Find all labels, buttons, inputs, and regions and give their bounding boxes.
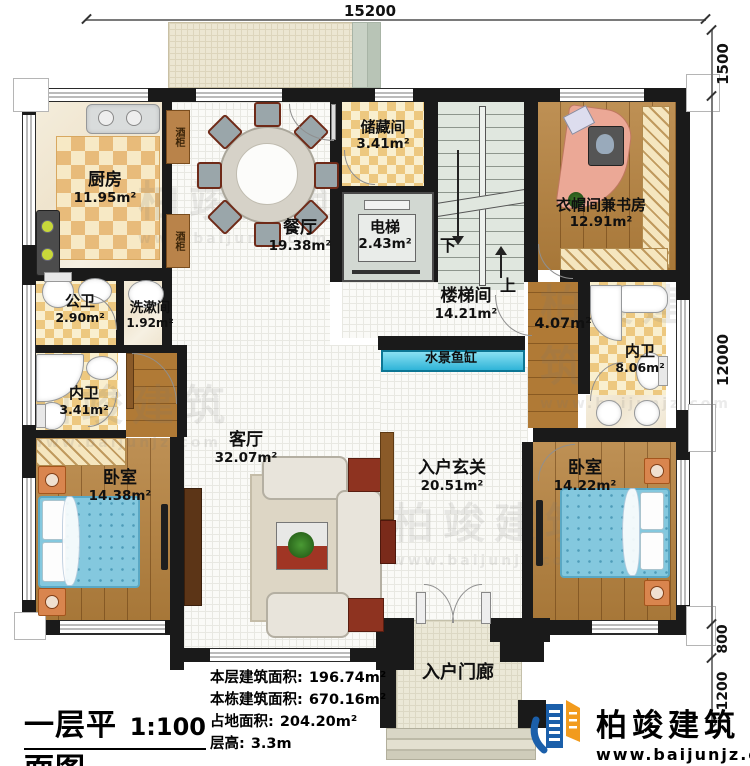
corridor-floor bbox=[528, 282, 578, 428]
stat-row: 占地面积:204.20m² bbox=[210, 711, 400, 733]
computer-screen bbox=[596, 134, 614, 154]
stat-value: 196.74m² bbox=[309, 667, 386, 689]
baijun-logo-icon bbox=[528, 694, 590, 758]
stat-label: 本层建筑面积: bbox=[210, 667, 303, 689]
baijun-logo-text: 柏竣建筑 www.baijunjz.com bbox=[596, 700, 746, 764]
floor-plan-canvas: 柏竣建筑www.baijunjz.com 柏竣建筑www.baijunjz.co… bbox=[0, 0, 750, 766]
dimension-right-terrace: 1500 bbox=[714, 29, 732, 99]
stair-arrow-up bbox=[495, 246, 507, 255]
vanity-sink bbox=[634, 400, 660, 426]
side-table bbox=[348, 598, 384, 632]
window bbox=[22, 115, 36, 245]
label-fish-tank: 水景鱼缸 bbox=[381, 351, 521, 367]
sofa bbox=[336, 490, 382, 606]
console-table bbox=[380, 432, 394, 520]
terrace-deck bbox=[168, 22, 356, 88]
bedroom-left-closet bbox=[36, 438, 126, 466]
stat-value: 670.16m² bbox=[309, 689, 386, 711]
bay-box bbox=[13, 78, 49, 112]
room-label-kitchen: 厨房11.95m² bbox=[50, 170, 160, 207]
terrace-planter bbox=[367, 22, 381, 88]
room-label-porch: 入户门廊 bbox=[398, 662, 518, 684]
window bbox=[210, 648, 350, 662]
stat-row: 层高:3.3m bbox=[210, 733, 400, 755]
elevator-door bbox=[352, 270, 420, 274]
title-underline bbox=[24, 748, 206, 750]
stats-block: 本层建筑面积:196.74m² 本栋建筑面积:670.16m² 占地面积:204… bbox=[210, 667, 400, 755]
stair-arrow-line bbox=[457, 150, 459, 238]
dining-chair bbox=[254, 102, 281, 127]
kitchen-sink-bowl bbox=[126, 110, 142, 126]
door-arc bbox=[538, 244, 573, 279]
wall bbox=[522, 442, 533, 620]
tv bbox=[161, 504, 168, 570]
wall bbox=[578, 282, 590, 394]
stat-label: 占地面积: bbox=[210, 711, 274, 733]
brand-website: www.baijunjz.com bbox=[596, 745, 746, 764]
brand-name: 柏竣建筑 bbox=[596, 700, 746, 745]
wall bbox=[170, 620, 184, 670]
stat-value: 3.3m bbox=[251, 733, 292, 755]
room-label-bedroom-left: 卧室14.38m² bbox=[70, 468, 170, 505]
pillow bbox=[640, 532, 664, 570]
wall bbox=[22, 430, 126, 438]
dining-chair bbox=[197, 162, 222, 189]
window bbox=[560, 88, 644, 102]
room-label-storage: 储藏间3.41m² bbox=[338, 118, 428, 152]
label-stairs-up: 上 bbox=[496, 276, 520, 295]
dimension-right-main: 12000 bbox=[714, 325, 732, 395]
room-label-living: 客厅32.07m² bbox=[196, 430, 296, 467]
window bbox=[676, 460, 690, 605]
nightstand bbox=[38, 466, 66, 494]
tv-cabinet bbox=[184, 488, 202, 606]
dimension-top-value: 15200 bbox=[330, 2, 410, 20]
dining-chair bbox=[314, 162, 339, 189]
stair-arrow-line bbox=[500, 252, 502, 278]
toilet-tank bbox=[44, 272, 72, 282]
porch-pillar bbox=[500, 642, 544, 662]
study-closet-bottom bbox=[560, 248, 668, 272]
nightstand bbox=[644, 458, 670, 484]
room-label-foyer: 入户玄关20.51m² bbox=[402, 458, 502, 495]
stat-row: 本栋建筑面积:670.16m² bbox=[210, 689, 400, 711]
wall bbox=[533, 428, 676, 442]
window bbox=[22, 285, 36, 425]
door-leaf bbox=[331, 104, 336, 140]
wine-cabinet: 酒柜 bbox=[166, 214, 190, 268]
porch-pillar bbox=[490, 618, 550, 642]
wall bbox=[524, 102, 538, 282]
window bbox=[48, 88, 148, 102]
entry-door-leaf bbox=[481, 592, 491, 624]
room-label-ensuite-left: 内卫3.41m² bbox=[44, 384, 124, 417]
stat-value: 204.20m² bbox=[280, 711, 357, 733]
room-label-corridor: 4.07m² bbox=[528, 316, 598, 333]
room-label-dining: 餐厅19.38m² bbox=[250, 218, 350, 255]
stove-burner bbox=[41, 248, 54, 261]
wall bbox=[177, 345, 187, 437]
pillow bbox=[640, 492, 664, 530]
stat-label: 本栋建筑面积: bbox=[210, 689, 303, 711]
side-table bbox=[348, 458, 384, 492]
wine-cabinet: 酒柜 bbox=[166, 110, 190, 164]
console-cabinet bbox=[380, 520, 396, 564]
bath-sink bbox=[86, 356, 118, 380]
room-label-ensuite-right: 内卫8.06m² bbox=[600, 342, 680, 375]
kitchen-sink-bowl bbox=[98, 110, 114, 126]
room-label-washroom: 洗漱间1.92m² bbox=[112, 300, 188, 331]
drawing-title: 一层平面图 1:100 bbox=[24, 700, 206, 766]
nightstand bbox=[644, 580, 670, 606]
room-label-study: 衣帽间兼书房12.91m² bbox=[538, 196, 664, 230]
stat-label: 层高: bbox=[210, 733, 245, 755]
blanket-fold bbox=[62, 496, 80, 586]
nightstand bbox=[38, 588, 66, 616]
vanity-sink bbox=[596, 400, 622, 426]
wall bbox=[378, 336, 525, 350]
room-label-public-bath: 公卫2.90m² bbox=[40, 292, 120, 325]
bathtub bbox=[614, 285, 668, 313]
tv bbox=[536, 500, 543, 566]
room-label-bedroom-right: 卧室14.22m² bbox=[535, 458, 635, 495]
dining-table-top bbox=[236, 143, 298, 205]
stove-burner bbox=[41, 220, 54, 233]
bay-box bbox=[14, 612, 46, 640]
window bbox=[60, 620, 165, 635]
terrace-planter bbox=[352, 22, 368, 88]
window bbox=[22, 478, 36, 600]
blanket-fold bbox=[622, 488, 640, 576]
stat-row: 本层建筑面积:196.74m² bbox=[210, 667, 400, 689]
elevator-panel bbox=[364, 200, 410, 210]
wall bbox=[170, 437, 184, 620]
window bbox=[375, 88, 413, 102]
window bbox=[592, 620, 658, 635]
study-closet-right bbox=[642, 106, 670, 268]
label-stairs-down: 下 bbox=[436, 236, 460, 255]
room-label-elevator: 电梯2.43m² bbox=[340, 218, 430, 252]
wall bbox=[560, 270, 676, 282]
drawing-scale: 1:100 bbox=[130, 713, 206, 741]
wall bbox=[22, 345, 180, 353]
porch-steps bbox=[386, 728, 536, 760]
plant bbox=[288, 532, 314, 558]
sofa bbox=[266, 592, 350, 638]
window bbox=[196, 88, 282, 102]
drawing-title-text: 一层平面图 bbox=[24, 700, 120, 766]
